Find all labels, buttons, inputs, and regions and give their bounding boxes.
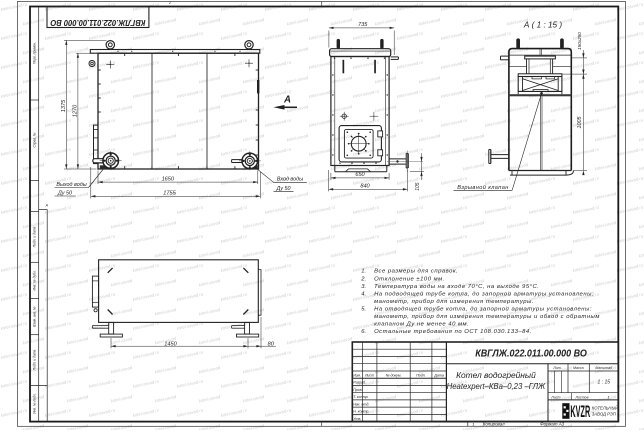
- svg-text:1450: 1450: [164, 342, 177, 348]
- svg-text:Н. контр.: Н. контр.: [353, 410, 369, 414]
- svg-text:Справ. №: Справ. №: [33, 132, 37, 147]
- svg-text:Формат А3: Формат А3: [540, 421, 565, 426]
- svg-text:Ду 50: Ду 50: [57, 191, 72, 197]
- svg-text:Ду 50: Ду 50: [275, 186, 290, 192]
- svg-text:А: А: [283, 95, 291, 106]
- svg-text:А: А: [45, 204, 49, 208]
- svg-text:Взам. инв. №: Взам. инв. №: [33, 306, 37, 327]
- svg-text:1.: 1.: [361, 269, 366, 275]
- svg-text:Подп. и дата: Подп. и дата: [33, 227, 37, 248]
- svg-text:клапаном Ду не менее 40 мм.: клапаном Ду не менее 40 мм.: [374, 322, 469, 328]
- svg-text:КВГЛЖ.022.011.00.000 ВО: КВГЛЖ.022.011.00.000 ВО: [475, 347, 587, 359]
- svg-text:1 : 15: 1 : 15: [598, 380, 611, 386]
- svg-text:КОТЕЛЬНЫЙ: КОТЕЛЬНЫЙ: [592, 405, 618, 410]
- svg-text:А ( 1 : 15 ): А ( 1 : 15 ): [523, 21, 562, 30]
- svg-text:Все размеры для справок.: Все размеры для справок.: [374, 269, 458, 275]
- svg-text:Инв. № дубл.: Инв. № дубл.: [33, 270, 37, 290]
- svg-text:1755: 1755: [163, 191, 176, 197]
- svg-text:Температура воды на входе 70°С: Температура воды на входе 70°С, на выход…: [374, 284, 539, 290]
- svg-text:2.: 2.: [360, 276, 366, 282]
- svg-text:1375: 1375: [61, 99, 67, 112]
- svg-text:Т. контр.: Т. контр.: [353, 395, 369, 399]
- svg-text:Остальные требования по ОСТ 10: Остальные требования по ОСТ 108.030.133–…: [374, 329, 532, 335]
- svg-text:манометр, прибор для измерения: манометр, прибор для измерения температу…: [374, 299, 534, 305]
- svg-text:ЗАВОД РЭП: ЗАВОД РЭП: [592, 411, 617, 416]
- svg-text:6.: 6.: [361, 329, 366, 335]
- svg-text:Нач. отд.: Нач. отд.: [353, 402, 369, 406]
- svg-text:2: 2: [168, 1, 171, 5]
- svg-text:Подп. и дата: Подп. и дата: [33, 350, 37, 371]
- svg-text:КВГЛЖ.022.011.00.000 ВО: КВГЛЖ.022.011.00.000 ВО: [50, 18, 146, 27]
- svg-text:650: 650: [355, 172, 365, 178]
- svg-text:5.: 5.: [361, 306, 366, 312]
- svg-text:1005: 1005: [577, 116, 583, 129]
- svg-text:KVZR: KVZR: [570, 403, 590, 421]
- svg-text:1270: 1270: [72, 104, 78, 117]
- svg-text:Утв.: Утв.: [353, 417, 361, 421]
- svg-text:Отклонение ±100 мм.: Отклонение ±100 мм.: [374, 276, 445, 282]
- svg-text:1: 1: [472, 421, 474, 426]
- svg-text:Разраб.: Разраб.: [353, 381, 366, 385]
- svg-text:манометр, прибор для измерения: манометр, прибор для измерения температу…: [374, 314, 600, 320]
- svg-text:№ докум.: № докум.: [386, 373, 402, 377]
- svg-text:Инв. № подл.: Инв. № подл.: [33, 393, 37, 414]
- svg-text:Лист: Лист: [550, 395, 560, 399]
- svg-text:Изм.: Изм.: [353, 373, 361, 377]
- svg-text:Пров.: Пров.: [353, 388, 362, 392]
- svg-text:Взрывной клапан: Взрывной клапан: [457, 184, 508, 191]
- svg-text:Масштаб: Масштаб: [595, 366, 613, 370]
- svg-text:80: 80: [268, 342, 275, 348]
- svg-text:840: 840: [360, 184, 370, 190]
- svg-text:Дата: Дата: [433, 373, 443, 377]
- svg-text:3.: 3.: [361, 284, 366, 290]
- svg-text:4.: 4.: [361, 291, 366, 297]
- svg-text:Лист: Лист: [364, 373, 374, 377]
- svg-text:Вход воды: Вход воды: [277, 177, 303, 183]
- svg-text:1: 1: [607, 395, 609, 399]
- svg-text:1650: 1650: [162, 176, 175, 182]
- svg-text:105: 105: [415, 182, 421, 191]
- svg-text:На отводящей трубе котла, до з: На отводящей трубе котла, до запорной ар…: [374, 305, 592, 312]
- svg-text:Лит.: Лит.: [552, 366, 561, 370]
- svg-text:Подп.: Подп.: [416, 373, 426, 377]
- svg-text:Котел водогрейный: Котел водогрейный: [456, 370, 536, 380]
- svg-text:Листов: Листов: [574, 395, 588, 399]
- svg-text:Копировал: Копировал: [483, 421, 505, 426]
- svg-text:150х250: 150х250: [577, 32, 582, 50]
- svg-text:Перв. примен.: Перв. примен.: [33, 42, 37, 64]
- svg-text:Выход воды: Выход воды: [56, 182, 86, 188]
- svg-text:735: 735: [358, 22, 368, 28]
- svg-text:На подводящей трубе котла, до: На подводящей трубе котла, до запорной а…: [374, 290, 594, 297]
- svg-text:Heatexpert–КВа–0,23 –ГЛЖ: Heatexpert–КВа–0,23 –ГЛЖ: [447, 381, 547, 391]
- svg-text:Масса: Масса: [573, 366, 584, 370]
